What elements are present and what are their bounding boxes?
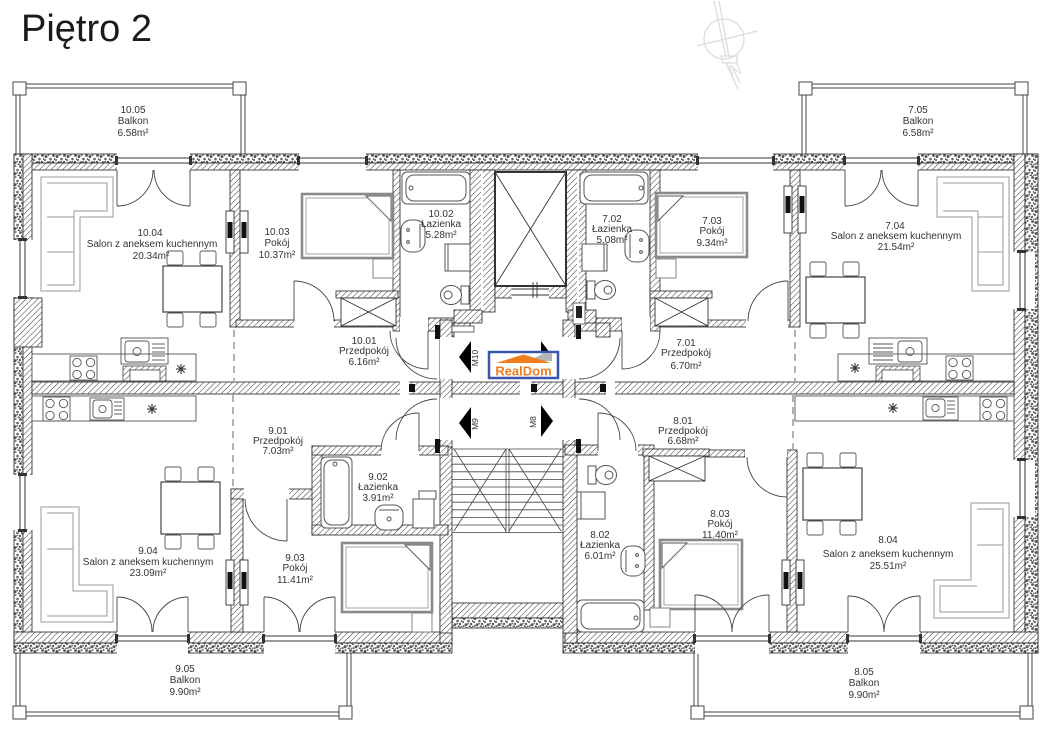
svg-text:Pokój: Pokój xyxy=(282,563,307,574)
svg-text:Salon z aneksem kuchennym: Salon z aneksem kuchennym xyxy=(823,549,954,560)
svg-text:8.05: 8.05 xyxy=(854,667,874,678)
svg-text:Piętro 2: Piętro 2 xyxy=(21,8,152,50)
svg-text:25.51m²: 25.51m² xyxy=(870,561,907,572)
svg-text:10.03: 10.03 xyxy=(264,227,289,238)
svg-text:Pokój: Pokój xyxy=(707,519,732,530)
svg-text:5.08m²: 5.08m² xyxy=(596,235,628,246)
svg-text:11.41m²: 11.41m² xyxy=(277,575,314,586)
svg-text:Salon z aneksem kuchennym: Salon z aneksem kuchennym xyxy=(87,239,218,250)
svg-text:6.16m²: 6.16m² xyxy=(348,357,380,368)
svg-text:Łazienka: Łazienka xyxy=(592,224,632,235)
svg-text:Łazienka: Łazienka xyxy=(580,540,620,551)
svg-text:Pokój: Pokój xyxy=(699,226,724,237)
svg-text:9.34m²: 9.34m² xyxy=(696,238,728,249)
svg-text:21.54m²: 21.54m² xyxy=(878,242,915,253)
svg-text:8.04: 8.04 xyxy=(878,535,898,546)
svg-text:10.05: 10.05 xyxy=(120,105,145,116)
svg-text:10.37m²: 10.37m² xyxy=(259,250,296,261)
svg-text:9.90m²: 9.90m² xyxy=(169,687,201,698)
svg-text:Łazienka: Łazienka xyxy=(358,482,398,493)
svg-text:3.91m²: 3.91m² xyxy=(362,493,394,504)
svg-text:Balkon: Balkon xyxy=(903,116,934,127)
svg-text:6.58m²: 6.58m² xyxy=(902,128,934,139)
svg-text:Łazienka: Łazienka xyxy=(421,219,461,230)
svg-text:6.70m²: 6.70m² xyxy=(670,361,702,372)
svg-text:Salon z aneksem kuchennym: Salon z aneksem kuchennym xyxy=(83,557,214,568)
svg-text:7.03m²: 7.03m² xyxy=(262,446,294,457)
svg-text:Przedpokój: Przedpokój xyxy=(339,346,389,357)
svg-text:Pokój: Pokój xyxy=(264,238,289,249)
svg-text:20.34m²: 20.34m² xyxy=(133,251,170,262)
svg-text:9.05: 9.05 xyxy=(175,664,195,675)
svg-text:23.09m²: 23.09m² xyxy=(130,568,167,579)
svg-text:RealDom: RealDom xyxy=(495,364,551,379)
svg-text:9.90m²: 9.90m² xyxy=(848,690,880,701)
svg-text:Balkon: Balkon xyxy=(849,678,880,689)
svg-text:6.68m²: 6.68m² xyxy=(667,436,699,447)
svg-text:Balkon: Balkon xyxy=(118,116,149,127)
svg-text:6.01m²: 6.01m² xyxy=(584,551,616,562)
svg-text:7.05: 7.05 xyxy=(908,105,928,116)
svg-text:M10: M10 xyxy=(470,349,480,366)
svg-text:M8: M8 xyxy=(528,416,538,428)
svg-text:5.28m²: 5.28m² xyxy=(425,230,457,241)
svg-text:10.04: 10.04 xyxy=(137,228,162,239)
svg-text:9.04: 9.04 xyxy=(138,546,158,557)
svg-text:11.40m²: 11.40m² xyxy=(702,530,739,541)
svg-text:6.58m²: 6.58m² xyxy=(117,128,149,139)
svg-text:Salon z aneksem kuchennym: Salon z aneksem kuchennym xyxy=(831,231,962,242)
svg-text:M9: M9 xyxy=(470,418,480,430)
svg-text:Przedpokój: Przedpokój xyxy=(661,348,711,359)
svg-text:Balkon: Balkon xyxy=(170,675,201,686)
